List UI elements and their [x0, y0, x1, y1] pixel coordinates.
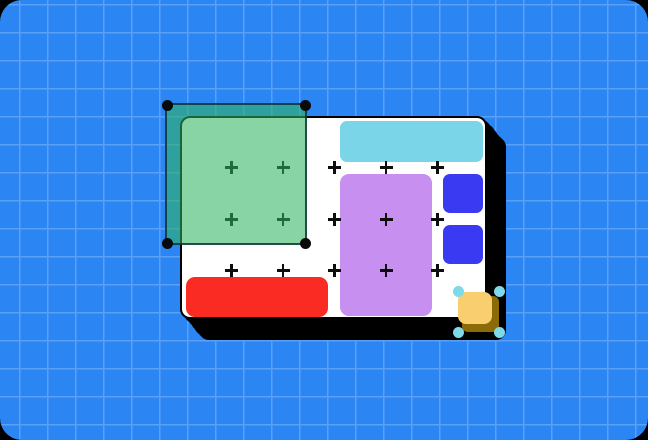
black-corner-handle[interactable]	[162, 238, 173, 249]
purple-rect[interactable]	[340, 174, 432, 316]
plus-marker	[225, 264, 238, 277]
cyan-bar[interactable]	[340, 121, 483, 162]
illustration-stage	[0, 0, 648, 440]
black-corner-handle[interactable]	[300, 238, 311, 249]
cyan-corner-handle[interactable]	[453, 286, 464, 297]
cyan-corner-handle[interactable]	[494, 327, 505, 338]
black-corner-handle[interactable]	[162, 100, 173, 111]
plus-marker	[431, 264, 444, 277]
yellow-square-group[interactable]	[458, 291, 499, 332]
cyan-corner-handle[interactable]	[494, 286, 505, 297]
blue-square-bottom[interactable]	[443, 225, 483, 264]
plus-marker	[431, 213, 444, 226]
blue-square-top[interactable]	[443, 174, 483, 213]
plus-marker	[380, 161, 393, 174]
plus-marker	[380, 213, 393, 226]
cyan-corner-handle[interactable]	[453, 327, 464, 338]
design-canvas[interactable]	[0, 0, 648, 440]
plus-marker	[328, 161, 341, 174]
plus-marker	[328, 264, 341, 277]
plus-marker	[277, 264, 290, 277]
yellow-square[interactable]	[458, 292, 492, 324]
plus-marker	[380, 264, 393, 277]
red-bar[interactable]	[186, 277, 328, 317]
black-corner-handle[interactable]	[300, 100, 311, 111]
green-selection-box[interactable]	[165, 103, 307, 245]
plus-marker	[431, 161, 444, 174]
plus-marker	[328, 213, 341, 226]
